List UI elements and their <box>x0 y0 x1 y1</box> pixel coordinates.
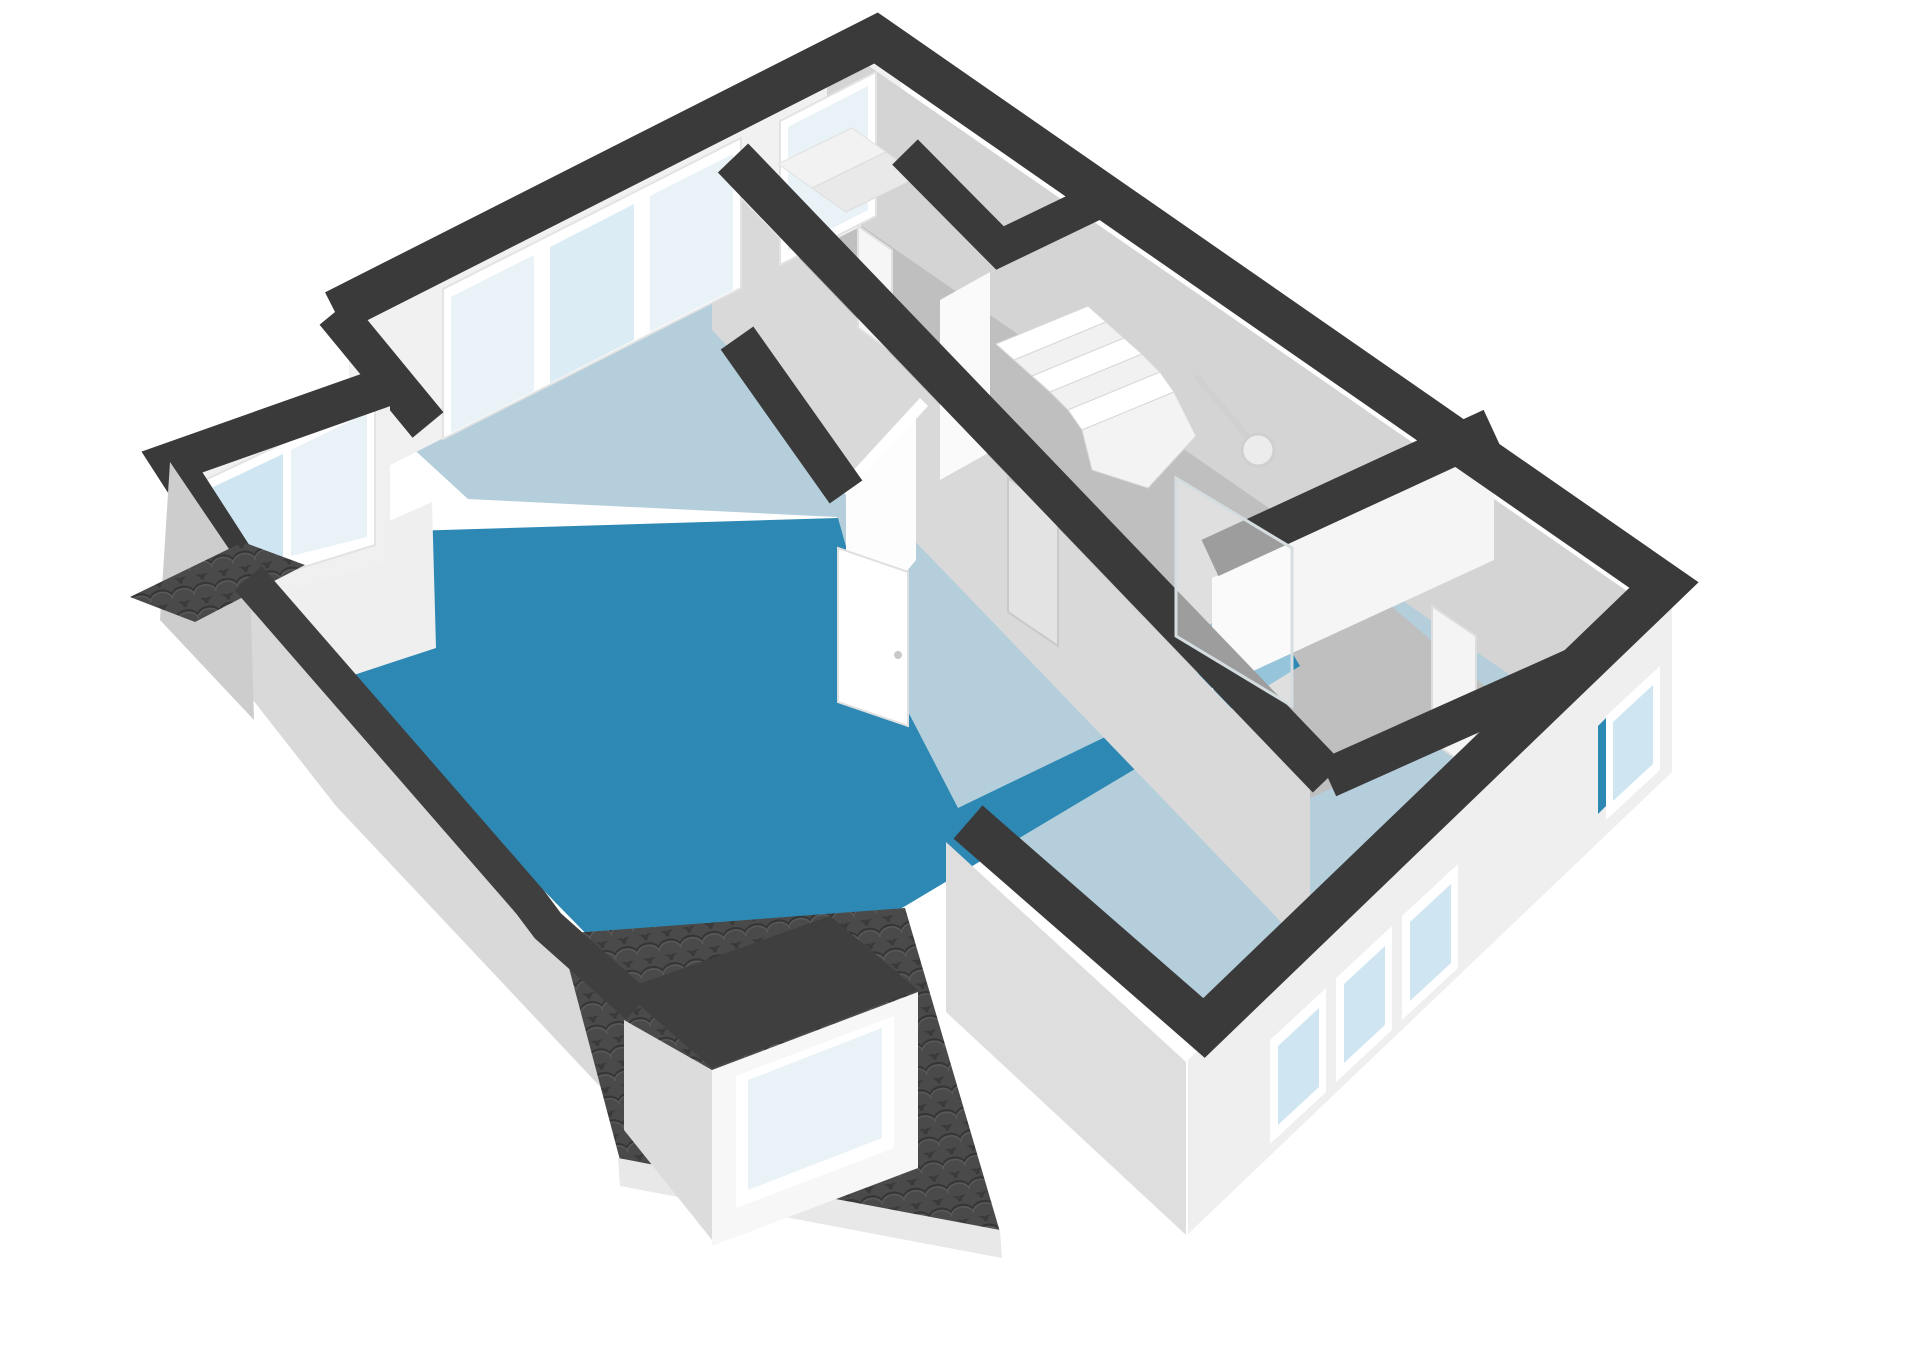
shower-head <box>1242 434 1274 466</box>
door-balcony-handle <box>894 651 902 659</box>
floorplan-3d-render <box>0 0 1920 1358</box>
door-balcony <box>838 548 908 726</box>
floorplan-3d-canvas <box>0 0 1920 1358</box>
